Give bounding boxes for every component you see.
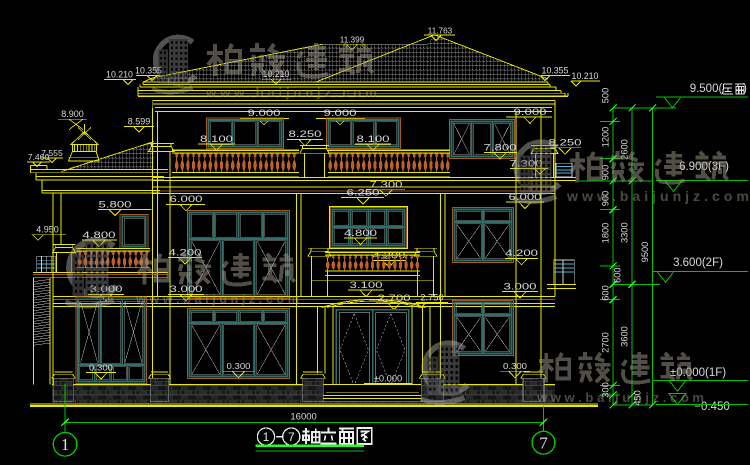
- svg-text:6.000: 6.000: [170, 194, 203, 204]
- svg-text:3300: 3300: [620, 222, 630, 243]
- svg-text:3.000: 3.000: [504, 281, 537, 291]
- svg-text:8.100: 8.100: [357, 134, 390, 144]
- svg-text:1: 1: [263, 430, 270, 444]
- svg-text:16000: 16000: [290, 412, 316, 423]
- svg-text:6.250: 6.250: [347, 188, 380, 198]
- svg-text:4.800: 4.800: [344, 228, 377, 238]
- svg-text:8.599: 8.599: [128, 116, 151, 126]
- svg-text:7: 7: [288, 430, 295, 444]
- svg-text:4.200: 4.200: [505, 248, 538, 258]
- svg-text:0.300: 0.300: [227, 362, 252, 371]
- svg-text:w w w . b a i j u n j z . c o: w w w . b a i j u n j z . c o m: [135, 292, 299, 306]
- svg-text:w w w . b a i j u n j z . c o: w w w . b a i j u n j z . c o m: [536, 391, 704, 405]
- svg-text:500: 500: [601, 88, 611, 104]
- svg-text:3.100: 3.100: [350, 280, 383, 290]
- svg-text:): ): [743, 83, 747, 95]
- svg-text:9500: 9500: [640, 242, 650, 263]
- svg-text:±0.000: ±0.000: [374, 373, 402, 383]
- svg-text:1: 1: [61, 435, 70, 454]
- svg-text:4.950: 4.950: [36, 225, 59, 235]
- svg-text:w w w . b a i j u n j z . c o: w w w . b a i j u n j z . c o m: [566, 189, 749, 204]
- svg-text:8.900: 8.900: [61, 109, 84, 119]
- svg-text:9.000: 9.000: [514, 107, 547, 117]
- svg-text:7.800: 7.800: [484, 142, 517, 152]
- svg-text:10.355: 10.355: [542, 66, 569, 76]
- svg-text:5.800: 5.800: [99, 200, 132, 210]
- svg-text:8.100: 8.100: [200, 134, 233, 144]
- svg-text:9.500(: 9.500(: [690, 83, 723, 95]
- svg-text:9.000: 9.000: [248, 108, 281, 118]
- svg-text:10.210: 10.210: [572, 71, 599, 81]
- svg-text:3.600(2F): 3.600(2F): [673, 257, 723, 269]
- svg-text:1200: 1200: [601, 127, 611, 148]
- svg-text:11.763: 11.763: [428, 27, 453, 36]
- svg-text:3600: 3600: [620, 326, 630, 347]
- svg-text:8.250: 8.250: [289, 129, 322, 139]
- svg-text:7.460: 7.460: [28, 152, 50, 162]
- svg-text:11.399: 11.399: [340, 36, 365, 45]
- svg-text:9.000: 9.000: [324, 108, 357, 118]
- svg-text:600: 600: [613, 267, 623, 283]
- svg-text:w w w . b a i j u n j z . c o: w w w . b a i j u n j z . c o m: [205, 85, 377, 100]
- svg-text:0.300: 0.300: [503, 362, 528, 371]
- svg-text:10.210: 10.210: [106, 70, 133, 80]
- svg-text:7: 7: [539, 433, 548, 452]
- svg-text:600: 600: [601, 285, 611, 301]
- svg-text:0.300: 0.300: [89, 363, 114, 372]
- svg-text:2700: 2700: [601, 332, 611, 353]
- svg-text:1800: 1800: [601, 223, 611, 244]
